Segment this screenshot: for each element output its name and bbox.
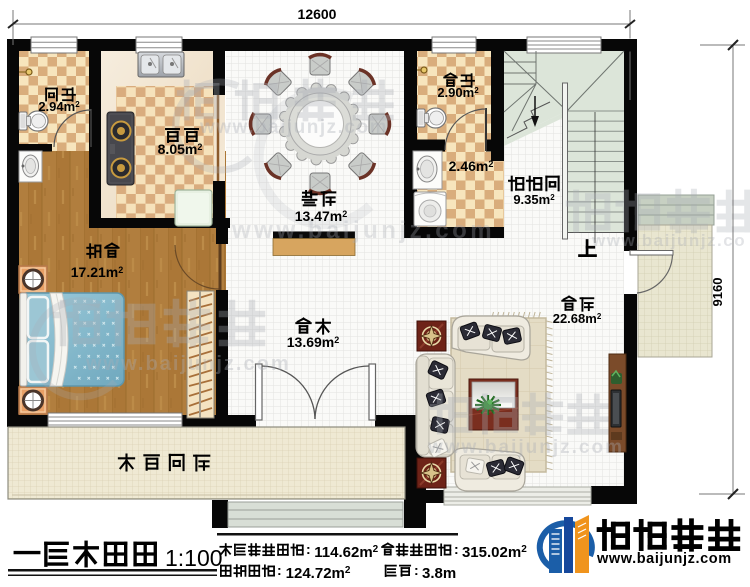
svg-text:3.8m: 3.8m (422, 565, 456, 582)
svg-text:2.94m2: 2.94m2 (38, 99, 80, 114)
svg-text:2.46m2: 2.46m2 (449, 158, 494, 174)
svg-text:13.47m2: 13.47m2 (295, 208, 348, 224)
svg-text:17.21m2: 17.21m2 (71, 264, 124, 280)
svg-text::: : (454, 541, 459, 557)
svg-text:www.baijunjz.com: www.baijunjz.com (85, 353, 291, 375)
svg-text:2.90m2: 2.90m2 (437, 85, 479, 100)
svg-text::: : (414, 562, 419, 578)
svg-text:9160: 9160 (710, 278, 725, 307)
svg-text:315.02m2: 315.02m2 (462, 544, 527, 561)
svg-text:1:100: 1:100 (165, 545, 223, 571)
svg-text:www.baijunjz.com: www.baijunjz.com (199, 117, 388, 138)
svg-text:13.69m2: 13.69m2 (287, 334, 340, 350)
svg-text:www.baijunjz.com: www.baijunjz.com (427, 437, 624, 458)
svg-text::: : (277, 562, 282, 578)
svg-text:www.baijunjz.co: www.baijunjz.co (591, 231, 746, 250)
svg-text:www.baijunjz.com: www.baijunjz.com (231, 217, 495, 244)
svg-text:124.72m2: 124.72m2 (286, 565, 351, 582)
svg-text:12600: 12600 (298, 6, 337, 22)
svg-text::: : (306, 541, 311, 557)
svg-text:9.35m2: 9.35m2 (513, 192, 555, 207)
svg-text:www.baijunjz.com: www.baijunjz.com (596, 551, 732, 567)
svg-text:8.05m2: 8.05m2 (158, 141, 203, 157)
svg-text:22.68m2: 22.68m2 (553, 311, 602, 326)
svg-text:114.62m2: 114.62m2 (314, 544, 378, 561)
